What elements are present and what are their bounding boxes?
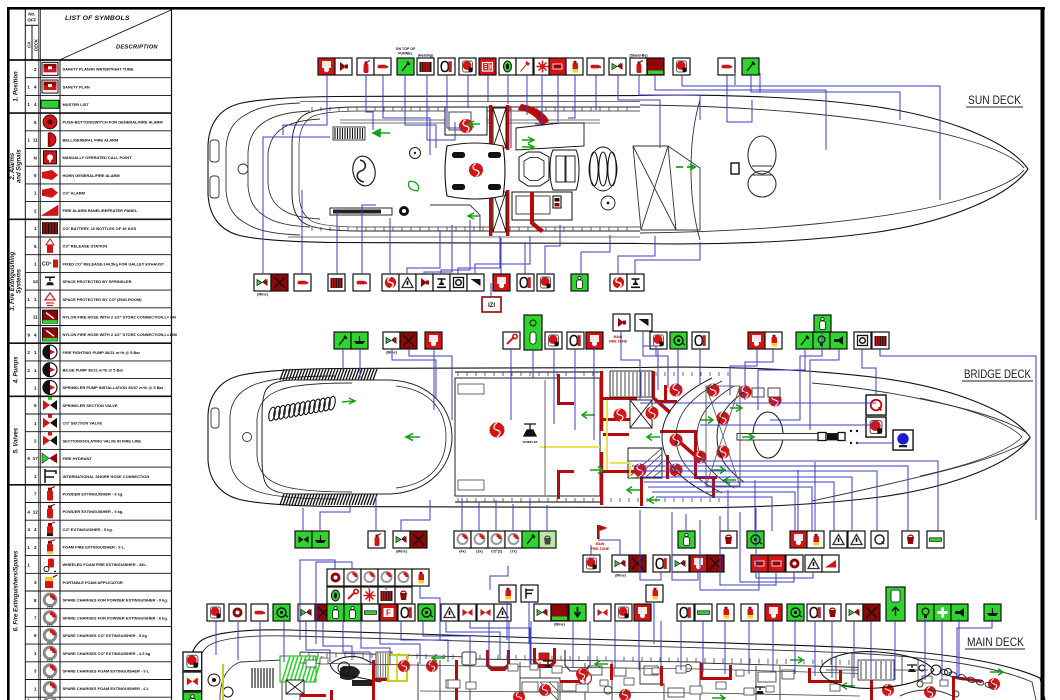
- svg-text:CO²: CO²: [47, 677, 53, 681]
- svg-text:DECK: DECK: [34, 38, 39, 51]
- svg-text:Systems: Systems: [17, 268, 23, 293]
- svg-text:1: 1: [27, 138, 30, 143]
- svg-text:MUSTER LIST: MUSTER LIST: [63, 102, 90, 107]
- svg-text:4: 4: [34, 332, 37, 337]
- svg-text:MAIN: MAIN: [596, 542, 605, 546]
- svg-text:5. Valves: 5. Valves: [14, 427, 20, 453]
- svg-text:9: 9: [27, 332, 30, 337]
- svg-text:FIXED CO² RELEASE-144,5kg FOR: FIXED CO² RELEASE-144,5kg FOR GALLEY EXH…: [63, 261, 165, 266]
- svg-text:POWDER EXTINGUISHER - 9 kg.: POWDER EXTINGUISHER - 9 kg.: [63, 509, 124, 514]
- svg-text:1: 1: [27, 85, 30, 90]
- svg-text:FIRE ZONE: FIRE ZONE: [591, 547, 610, 551]
- svg-text:1: 1: [34, 350, 37, 355]
- svg-text:MAIN DECK: MAIN DECK: [967, 635, 1024, 649]
- svg-text:CO² RELEASE STATION: CO² RELEASE STATION: [63, 244, 108, 249]
- svg-text:SUN DECK: SUN DECK: [968, 93, 1021, 107]
- svg-text:3: 3: [34, 669, 37, 674]
- svg-text:7: 7: [34, 616, 37, 621]
- svg-text:CO² BATTERY, 10 BOTTLES OF 45: CO² BATTERY, 10 BOTTLES OF 45 KGS: [63, 226, 137, 231]
- svg-text:CO²: CO²: [42, 262, 52, 268]
- svg-text:14: 14: [33, 279, 39, 284]
- svg-text:4: 4: [27, 527, 30, 532]
- svg-text:POWDER EXTINGUISHER - 6 kg.: POWDER EXTINGUISHER - 6 kg.: [63, 491, 124, 496]
- svg-text:3: 3: [34, 580, 37, 585]
- svg-text:8: 8: [34, 598, 37, 603]
- svg-text:LIST OF SYMBOLS: LIST OF SYMBOLS: [65, 15, 130, 22]
- svg-text:SPACE PROTECTED BY CO² (ENG.RO: SPACE PROTECTED BY CO² (ENG.ROOM): [63, 297, 143, 302]
- svg-text:(3x): (3x): [476, 550, 483, 554]
- svg-text:SPACE PROTECTED BY SPRINKLER: SPACE PROTECTED BY SPRINKLER: [63, 279, 132, 284]
- svg-text:5: 5: [34, 244, 37, 249]
- svg-text:CO²: CO²: [47, 659, 53, 663]
- svg-text:1: 1: [34, 368, 37, 373]
- svg-text:SPRINKLER SECTION VALVE: SPRINKLER SECTION VALVE: [63, 403, 118, 408]
- svg-text:NYLON FIRE HOSE WITH 2 1/2" ST: NYLON FIRE HOSE WITH 2 1/2" STORZ CONNEC…: [63, 314, 177, 319]
- svg-text:PUSH-BUTTON/SWITCH FOR GENERAL: PUSH-BUTTON/SWITCH FOR GENERAL/FIRE ALAR…: [63, 120, 164, 125]
- svg-text:2. Alarms: 2. Alarms: [10, 152, 16, 180]
- svg-text:FIRE HYDRANT: FIRE HYDRANT: [63, 456, 93, 461]
- svg-text:SPARE CHARGES CO² EXTINGUISHER: SPARE CHARGES CO² EXTINGUISHER - 5 kg: [63, 633, 148, 638]
- svg-text:2: 2: [27, 368, 30, 373]
- svg-text:2: 2: [34, 439, 37, 444]
- svg-text:CA: CA: [27, 42, 32, 48]
- svg-text:FOAM FIRE EXTINGUISHER - 9 L.: FOAM FIRE EXTINGUISHER - 9 L.: [63, 545, 126, 550]
- svg-text:1: 1: [34, 421, 37, 426]
- svg-text:1: 1: [34, 226, 37, 231]
- svg-text:1: 1: [34, 297, 37, 302]
- svg-text:CO²: CO²: [47, 624, 53, 628]
- svg-text:SAFETY PLAN/IN WATERTIGHT TUBE: SAFETY PLAN/IN WATERTIGHT TUBE: [63, 67, 134, 72]
- svg-text:(Mine): (Mine): [554, 623, 565, 627]
- svg-text:SECTION/ISOLATING VALVE IN FIR: SECTION/ISOLATING VALVE IN FIRE LINE: [63, 438, 142, 443]
- svg-text:PORTABLE FOAM APPLICATOR: PORTABLE FOAM APPLICATOR: [63, 580, 123, 585]
- svg-text:11: 11: [33, 315, 38, 320]
- svg-text:1: 1: [34, 385, 37, 390]
- svg-text:4: 4: [34, 527, 37, 532]
- svg-text:SPARE CHARGES CO² EXTINGUISHER: SPARE CHARGES CO² EXTINGUISHER - 4.5 kg: [63, 651, 151, 656]
- svg-text:1: 1: [34, 262, 37, 267]
- svg-text:1: 1: [27, 545, 30, 550]
- svg-text:6. Fire Extinguishers/Spares: 6. Fire Extinguishers/Spares: [14, 550, 20, 631]
- svg-text:CO²(2): CO²(2): [491, 550, 503, 554]
- svg-text:(Heating): (Heating): [418, 54, 434, 58]
- svg-text:CO² ALARM: CO² ALARM: [63, 191, 86, 196]
- svg-text:SPARE CHARGES FOAM EXTINGUISH: SPARE CHARGES FOAM EXTINGUISHER - 6 L: [63, 686, 150, 691]
- svg-text:4: 4: [27, 509, 30, 514]
- svg-text:NYLON FIRE HOSE WITH 2 1/2" ST: NYLON FIRE HOSE WITH 2 1/2" STORZ CONNEC…: [63, 332, 178, 337]
- svg-text:BILGE PUMP 36/21 m³/h @ 5 Bar: BILGE PUMP 36/21 m³/h @ 5 Bar: [63, 368, 124, 373]
- svg-text:5: 5: [34, 120, 37, 125]
- svg-text:1. Position: 1. Position: [14, 71, 20, 102]
- svg-text:7: 7: [34, 492, 37, 497]
- svg-text:1: 1: [34, 686, 37, 691]
- svg-text:INTERNATIONAL SHORE HOSE CONNE: INTERNATIONAL SHORE HOSE CONNECTION: [63, 474, 150, 479]
- svg-text:IZI: IZI: [488, 303, 495, 309]
- svg-text:FIRE FIGHTING PUMP 36/21 m³/h: FIRE FIGHTING PUMP 36/21 m³/h @ 5 Bar: [63, 350, 141, 355]
- svg-text:SPARE CHARGES FOAM EXTINGUISH: SPARE CHARGES FOAM EXTINGUISHER - 9 L: [63, 668, 150, 673]
- svg-text:1: 1: [27, 297, 30, 302]
- svg-text:2: 2: [27, 350, 30, 355]
- svg-text:MANUALLY OPERATED CALL POINT: MANUALLY OPERATED CALL POINT: [63, 155, 133, 160]
- svg-text:1: 1: [27, 562, 30, 567]
- svg-text:6: 6: [34, 633, 37, 638]
- svg-text:ON TOP OF: ON TOP OF: [396, 47, 416, 51]
- svg-text:2: 2: [34, 545, 37, 550]
- svg-text:SPRINKLER: SPRINKLER: [523, 440, 538, 444]
- svg-text:(7x): (7x): [510, 550, 517, 554]
- svg-text:12: 12: [33, 509, 39, 514]
- svg-text:BELL/GENERAL FIRE ALARM: BELL/GENERAL FIRE ALARM: [63, 138, 119, 143]
- svg-text:CO² EXTINGUISHER - 5 kg.: CO² EXTINGUISHER - 5 kg.: [63, 527, 113, 532]
- svg-text:4: 4: [34, 85, 37, 90]
- svg-text:1: 1: [34, 191, 37, 196]
- svg-text:SAFETY PLAN: SAFETY PLAN: [63, 84, 90, 89]
- svg-text:1: 1: [27, 102, 30, 107]
- svg-text:2: 2: [34, 208, 37, 213]
- svg-text:FIRE ZONE: FIRE ZONE: [609, 340, 628, 344]
- svg-text:HORN GENERAL/FIRE ALARM: HORN GENERAL/FIRE ALARM: [63, 173, 121, 178]
- svg-text:DESCRIPTION: DESCRIPTION: [116, 45, 158, 51]
- svg-text:(4x): (4x): [459, 550, 466, 554]
- svg-text:and Signals: and Signals: [17, 149, 23, 183]
- svg-text:1: 1: [34, 651, 37, 656]
- svg-text:OFF: OFF: [27, 18, 36, 23]
- svg-text:(Mine): (Mine): [615, 574, 626, 578]
- svg-text:CO²: CO²: [47, 641, 53, 645]
- svg-text:SPARE CHARGES FOR POWDER EXTI: SPARE CHARGES FOR POWDER EXTINGUISHER - …: [63, 615, 168, 620]
- svg-text:BRIDGE DECK: BRIDGE DECK: [964, 367, 1031, 381]
- svg-text:4. Pumps: 4. Pumps: [14, 356, 20, 384]
- svg-text:3. Fire Extinguishing: 3. Fire Extinguishing: [10, 251, 16, 310]
- svg-text:9: 9: [27, 456, 30, 461]
- svg-text:CO²: CO²: [47, 606, 53, 610]
- svg-text:1: 1: [34, 474, 37, 479]
- svg-text:CO² SECTION VALVE: CO² SECTION VALVE: [63, 421, 103, 426]
- svg-text:11: 11: [33, 138, 38, 143]
- svg-text:4: 4: [34, 102, 37, 107]
- svg-text:17: 17: [33, 456, 39, 461]
- svg-text:SPARE CHARGES FOR POWDER EXTIN: SPARE CHARGES FOR POWDER EXTINGUISHER - …: [63, 598, 168, 603]
- svg-text:5: 5: [34, 173, 37, 178]
- svg-text:SPRINKLER PUMP INSTALLATION 36: SPRINKLER PUMP INSTALLATION 36/37 m³/h @…: [63, 385, 164, 390]
- svg-text:5: 5: [34, 403, 37, 408]
- svg-text:(Mine): (Mine): [257, 293, 268, 297]
- svg-text:WHEELED FOAM FIRE EXTINGUISHER: WHEELED FOAM FIRE EXTINGUISHER - 45L.: [63, 562, 147, 567]
- svg-text:No.: No.: [28, 12, 35, 17]
- svg-text:2: 2: [34, 67, 37, 72]
- svg-text:(Stand-By): (Stand-By): [629, 54, 648, 58]
- svg-text:FIRE ALARM PANEL/REPEATER PANE: FIRE ALARM PANEL/REPEATER PANEL: [63, 208, 138, 213]
- svg-text:(Mine): (Mine): [396, 550, 407, 554]
- svg-text:FUNNEL: FUNNEL: [398, 52, 413, 56]
